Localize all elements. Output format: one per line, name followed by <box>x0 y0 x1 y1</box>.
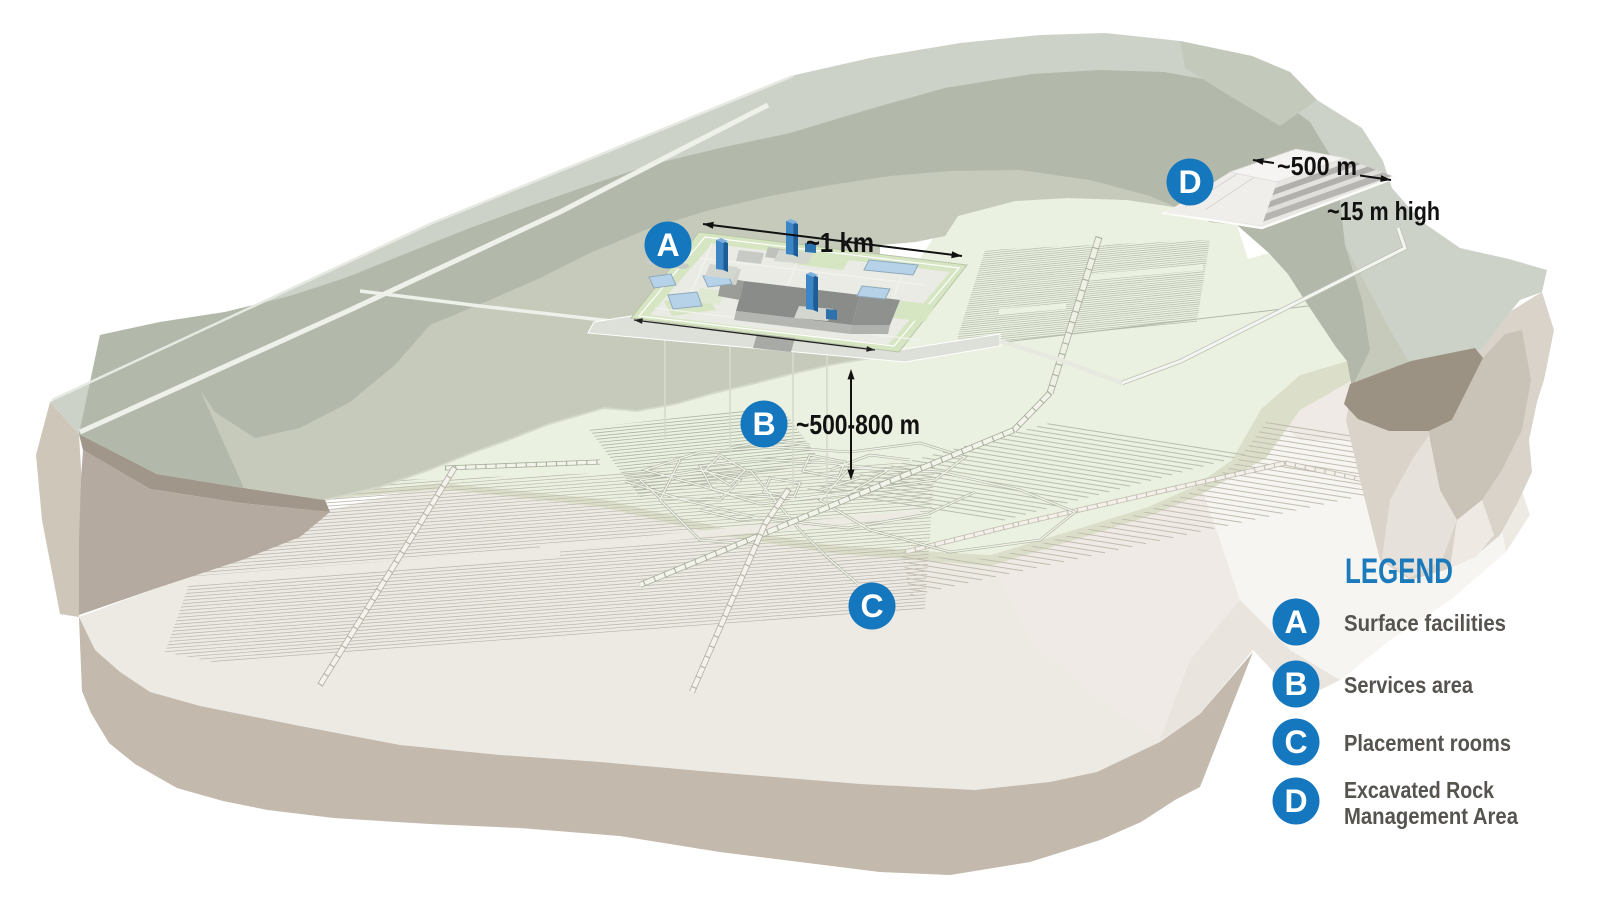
svg-text:~500-800 m: ~500-800 m <box>796 409 920 440</box>
svg-text:C: C <box>860 588 883 624</box>
svg-text:A: A <box>1284 604 1307 640</box>
svg-text:Placement rooms: Placement rooms <box>1344 730 1511 756</box>
svg-text:C: C <box>1284 724 1307 760</box>
svg-text:Surface facilities: Surface facilities <box>1344 610 1506 636</box>
svg-text:B: B <box>752 406 775 442</box>
svg-text:D: D <box>1284 783 1307 819</box>
svg-text:LEGEND: LEGEND <box>1345 552 1453 591</box>
svg-text:~15 m high: ~15 m high <box>1327 196 1440 226</box>
svg-text:~500 m: ~500 m <box>1277 151 1357 181</box>
svg-text:~1 km: ~1 km <box>806 227 874 258</box>
svg-text:A: A <box>656 227 679 263</box>
svg-text:D: D <box>1178 164 1201 200</box>
svg-text:Management Area: Management Area <box>1344 803 1518 829</box>
svg-text:Services area: Services area <box>1344 672 1473 698</box>
svg-text:Excavated Rock: Excavated Rock <box>1344 777 1494 803</box>
svg-text:B: B <box>1284 666 1307 702</box>
